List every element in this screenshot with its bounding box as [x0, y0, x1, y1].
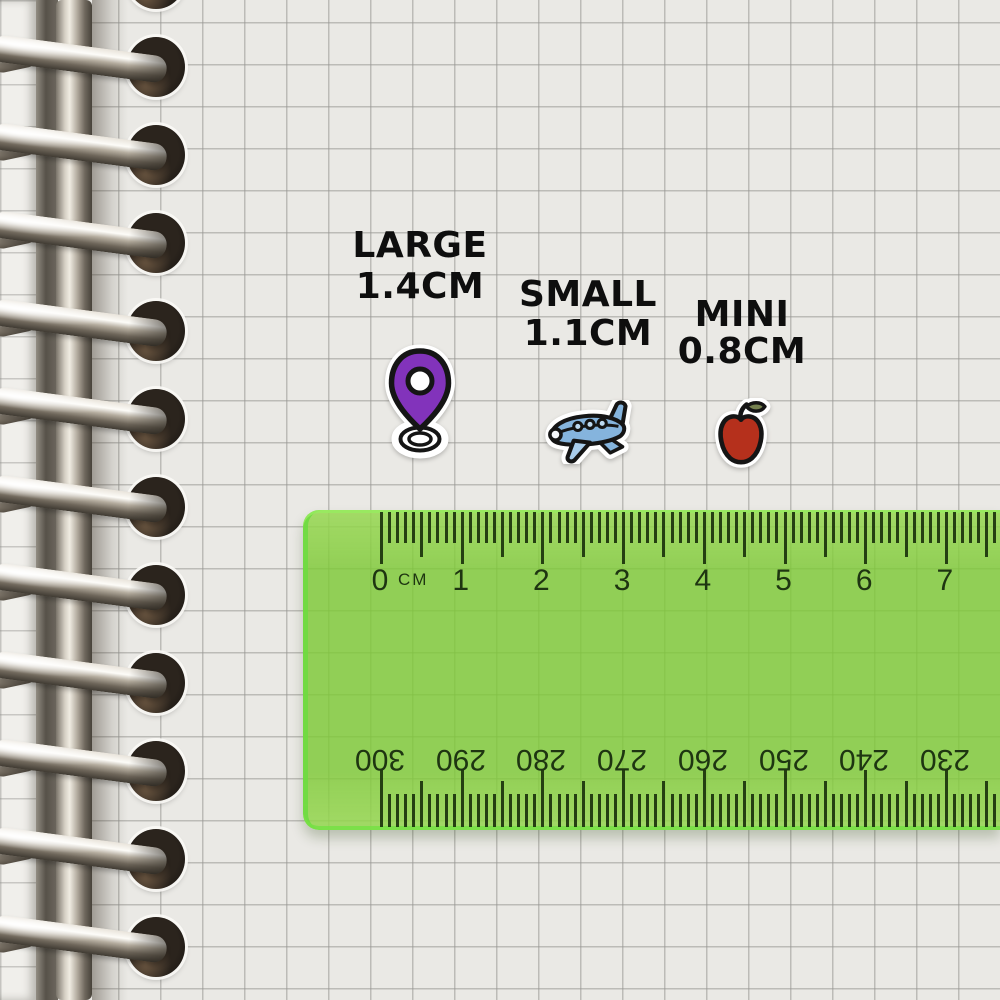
- ruler-mm-scale-tick: [630, 794, 633, 827]
- ruler-cm-scale-tick: [606, 512, 609, 543]
- ruler-cm-scale-tick: [872, 512, 875, 543]
- ruler-cm-scale-tick: [711, 512, 714, 543]
- ruler-cm-scale-tick: [856, 512, 859, 543]
- ruler-mm-scale-tick: [792, 794, 795, 827]
- ruler-mm-scale-tick: [436, 794, 439, 827]
- ruler-cm-scale-tick: [775, 512, 778, 543]
- ruler-mm-scale-tick: [420, 781, 423, 827]
- ruler-cm-scale-tick: [453, 512, 456, 543]
- ruler-cm-scale-tick: [404, 512, 407, 543]
- ruler-cm-scale-tick: [945, 512, 948, 564]
- notebook-photo: LARGE 1.4CM SMALL 1.1CM MINI 0.8CM: [0, 0, 1000, 1000]
- ruler-mm-scale-tick: [808, 794, 811, 827]
- ruler-mm-scale-tick: [921, 794, 924, 827]
- ruler-mm-scale-tick: [953, 794, 956, 827]
- pin-hole: [408, 369, 432, 393]
- ruler-cm-scale-tick: [614, 512, 617, 543]
- ruler-mm-scale-tick: [404, 794, 407, 827]
- ruler-mm-scale-tick: [775, 794, 778, 827]
- ruler-cm-scale-tick: [541, 512, 544, 564]
- ruler-cm-scale-tick: [646, 512, 649, 543]
- ruler-mm-scale-tick: [501, 781, 504, 827]
- ruler-cm-scale-tick: [703, 512, 706, 564]
- ruler-mm-scale-tick: [598, 794, 601, 827]
- ruler-cm-scale-tick: [929, 512, 932, 543]
- apple-leaf: [747, 403, 765, 411]
- ruler-mm-scale-tick: [396, 794, 399, 827]
- ruler-cm-scale-tick: [461, 512, 464, 564]
- ruler-cm-scale-tick: [396, 512, 399, 543]
- ruler-cm-scale-tick: [590, 512, 593, 543]
- ruler-mm-scale-tick: [566, 794, 569, 827]
- ruler-mm-scale-tick: [848, 794, 851, 827]
- ruler-mm-scale-tick: [937, 794, 940, 827]
- ruler-cm-scale-tick: [864, 512, 867, 564]
- ruler-cm-scale-tick: [662, 512, 665, 557]
- ruler-mm-scale-tick: [662, 781, 665, 827]
- plane-nose: [550, 429, 561, 440]
- ruler-cm-scale-tick: [549, 512, 552, 543]
- ruler-cm-scale-tick: [566, 512, 569, 543]
- ruler-cm-scale-tick: [792, 512, 795, 543]
- ruler-mm-scale-tick: [969, 794, 972, 827]
- ruler-cm-scale-tick: [671, 512, 674, 543]
- ruler-mm-scale-tick: [977, 794, 980, 827]
- ruler-mm-scale-tick: [832, 794, 835, 827]
- ruler-mm-scale-tick: [905, 781, 908, 827]
- ruler-mm-number: 250: [744, 742, 824, 776]
- ruler-mm-scale-tick: [703, 770, 706, 827]
- ruler-mm-scale-tick: [606, 794, 609, 827]
- ruler-cm-scale-tick: [501, 512, 504, 557]
- ruler-mm-scale-tick: [913, 794, 916, 827]
- ruler-cm-number: 3: [592, 564, 652, 598]
- ruler-mm-scale-tick: [622, 770, 625, 827]
- ruler-mm-scale-tick: [477, 794, 480, 827]
- ruler-cm-number: 5: [754, 564, 814, 598]
- ruler-mm-number: 290: [421, 742, 501, 776]
- ruler-mm-number: 280: [501, 742, 581, 776]
- ruler-cm-scale-tick: [832, 512, 835, 543]
- ruler-mm-scale-tick: [727, 794, 730, 827]
- location-pin-sticker: [382, 342, 458, 460]
- plane-window: [598, 419, 606, 427]
- ruler-cm-scale-tick: [695, 512, 698, 543]
- ruler-cm-number: 2: [511, 564, 571, 598]
- plane-window: [574, 422, 582, 430]
- ruler-cm-scale-tick: [961, 512, 964, 543]
- ruler-cm-scale-tick: [558, 512, 561, 543]
- ruler-cm-scale-tick: [469, 512, 472, 543]
- ruler-mm-scale-tick: [743, 781, 746, 827]
- ruler-cm-scale-tick: [493, 512, 496, 543]
- ruler-cm-scale-tick: [525, 512, 528, 543]
- ruler-cm-scale-tick: [824, 512, 827, 557]
- ruler-cm-scale-tick: [622, 512, 625, 564]
- ruler-mm-scale-tick: [485, 794, 488, 827]
- ruler-mm-scale-tick: [767, 794, 770, 827]
- ruler-cm-scale-tick: [937, 512, 940, 543]
- ruler-mm-scale-tick: [945, 770, 948, 827]
- ruler-mm-scale-tick: [388, 794, 391, 827]
- ruler-cm-scale-tick: [743, 512, 746, 557]
- binding-hole: [127, 0, 185, 9]
- ruler-mm-scale-tick: [759, 794, 762, 827]
- ruler-cm-scale-tick: [800, 512, 803, 543]
- ruler-cm-scale-tick: [687, 512, 690, 543]
- ruler-mm-scale-tick: [525, 794, 528, 827]
- ruler-cm-scale-tick: [784, 512, 787, 564]
- ruler-mm-scale-tick: [824, 781, 827, 827]
- ruler-mm-number: 240: [824, 742, 904, 776]
- ruler-cm-scale-tick: [905, 512, 908, 557]
- ruler-cm-scale-tick: [977, 512, 980, 543]
- ruler-cm-scale-tick: [913, 512, 916, 543]
- ruler-mm-scale-tick: [880, 794, 883, 827]
- ruler-mm-scale-tick: [614, 794, 617, 827]
- plane-window: [586, 420, 594, 428]
- ruler-mm-scale-tick: [929, 794, 932, 827]
- ruler-cm-scale-tick: [582, 512, 585, 557]
- ruler-cm-scale-tick: [445, 512, 448, 543]
- ruler-mm-scale-tick: [654, 794, 657, 827]
- ruler-cm-scale-tick: [412, 512, 415, 543]
- ruler-mm-scale-tick: [993, 794, 996, 827]
- ruler-cm-scale-tick: [517, 512, 520, 543]
- ruler-mm-scale-tick: [549, 794, 552, 827]
- ruler-cm-scale-tick: [420, 512, 423, 557]
- ruler-cm-scale-tick: [638, 512, 641, 543]
- ruler-mm-number: 230: [905, 742, 985, 776]
- ruler-mm-scale-tick: [784, 770, 787, 827]
- ruler-mm-scale-tick: [800, 794, 803, 827]
- ruler-cm-scale-tick: [574, 512, 577, 543]
- ruler-cm-number: 4: [673, 564, 733, 598]
- ruler-mm-scale-tick: [687, 794, 690, 827]
- ruler-mm-scale-tick: [469, 794, 472, 827]
- ruler-mm-scale-tick: [695, 794, 698, 827]
- ruler-mm-scale-tick: [679, 794, 682, 827]
- ruler-mm-scale-tick: [711, 794, 714, 827]
- ruler-mm-scale-tick: [380, 770, 383, 827]
- apple-body: [721, 416, 762, 462]
- pin-ripple-inner: [409, 433, 431, 445]
- ruler-cm-number: 1: [431, 564, 491, 598]
- ruler-cm-scale-tick: [888, 512, 891, 543]
- ruler-mm-number: 260: [663, 742, 743, 776]
- ruler-mm-scale-tick: [461, 770, 464, 827]
- ruler-mm-scale-tick: [816, 794, 819, 827]
- ruler-mm-scale-tick: [453, 794, 456, 827]
- ruler-cm-scale-tick: [735, 512, 738, 543]
- ruler-cm-scale-tick: [921, 512, 924, 543]
- ruler-mm-scale-tick: [856, 794, 859, 827]
- ruler-cm-number: 6: [834, 564, 894, 598]
- ruler-cm-scale-tick: [816, 512, 819, 543]
- ruler-mm-scale-tick: [872, 794, 875, 827]
- ruler-cm-number: 7: [915, 564, 975, 598]
- ruler-cm-scale-tick: [880, 512, 883, 543]
- ruler-mm-scale-tick: [751, 794, 754, 827]
- ruler-mm-scale-tick: [896, 794, 899, 827]
- ruler-mm-scale-tick: [493, 794, 496, 827]
- ruler-mm-scale-tick: [735, 794, 738, 827]
- ruler-cm-scale-tick: [848, 512, 851, 543]
- ruler-cm-scale-tick: [840, 512, 843, 543]
- ruler-cm-scale-tick: [436, 512, 439, 543]
- ruler-mm-scale-tick: [412, 794, 415, 827]
- ruler-mm-scale-tick: [533, 794, 536, 827]
- ruler-cm-scale-tick: [896, 512, 899, 543]
- ruler-mm-scale-tick: [888, 794, 891, 827]
- ruler-cm-scale-tick: [767, 512, 770, 543]
- ruler-cm-scale-tick: [485, 512, 488, 543]
- label-large-name: LARGE: [320, 228, 520, 264]
- ruler-cm-scale-tick: [477, 512, 480, 543]
- ruler-cm-scale-tick: [630, 512, 633, 543]
- ruler-mm-scale-tick: [646, 794, 649, 827]
- ruler-mm-number: 300: [340, 742, 420, 776]
- apple-sticker: [710, 398, 772, 470]
- ruler-cm-scale-tick: [509, 512, 512, 543]
- ruler-cm-scale-tick: [380, 512, 383, 564]
- ruler-cm-scale-tick: [808, 512, 811, 543]
- ruler-mm-scale-tick: [428, 794, 431, 827]
- ruler-cm-scale-tick: [751, 512, 754, 543]
- ruler-mm-scale-tick: [671, 794, 674, 827]
- ruler-mm-scale-tick: [558, 794, 561, 827]
- ruler-cm-scale-tick: [654, 512, 657, 543]
- ruler-mm-number: 270: [582, 742, 662, 776]
- ruler-cm-scale-tick: [969, 512, 972, 543]
- ruler-mm-scale-tick: [985, 781, 988, 827]
- ruler-cm-scale-tick: [719, 512, 722, 543]
- ruler-mm-scale-tick: [719, 794, 722, 827]
- ruler-mm-scale-tick: [582, 781, 585, 827]
- airplane-sticker: [543, 400, 637, 464]
- ruler-mm-scale-tick: [517, 794, 520, 827]
- ruler-cm-scale-tick: [388, 512, 391, 543]
- ruler-cm-scale-tick: [598, 512, 601, 543]
- ruler-mm-scale-tick: [445, 794, 448, 827]
- ruler-mm-scale-tick: [590, 794, 593, 827]
- ruler-cm-scale-tick: [759, 512, 762, 543]
- ruler-cm-scale-tick: [533, 512, 536, 543]
- ruler-cm-number: 0: [350, 564, 410, 598]
- ruler-cm-scale-tick: [953, 512, 956, 543]
- ruler-cm-scale-tick: [985, 512, 988, 557]
- ruler-cm-scale-tick: [428, 512, 431, 543]
- label-mini-size: 0.8CM: [642, 334, 842, 370]
- ruler-cm-scale-tick: [679, 512, 682, 543]
- label-mini-name: MINI: [642, 297, 842, 333]
- ruler-cm-scale-tick: [727, 512, 730, 543]
- ruler-mm-scale-tick: [961, 794, 964, 827]
- ruler-mm-scale-tick: [541, 770, 544, 827]
- ruler-mm-scale-tick: [840, 794, 843, 827]
- ruler-mm-scale-tick: [574, 794, 577, 827]
- ruler-cm-scale-tick: [993, 512, 996, 543]
- ruler: CM 01234567300290280270260250240230: [303, 510, 1000, 830]
- ruler-mm-scale-tick: [864, 770, 867, 827]
- ruler-mm-scale-tick: [509, 794, 512, 827]
- ruler-mm-scale-tick: [638, 794, 641, 827]
